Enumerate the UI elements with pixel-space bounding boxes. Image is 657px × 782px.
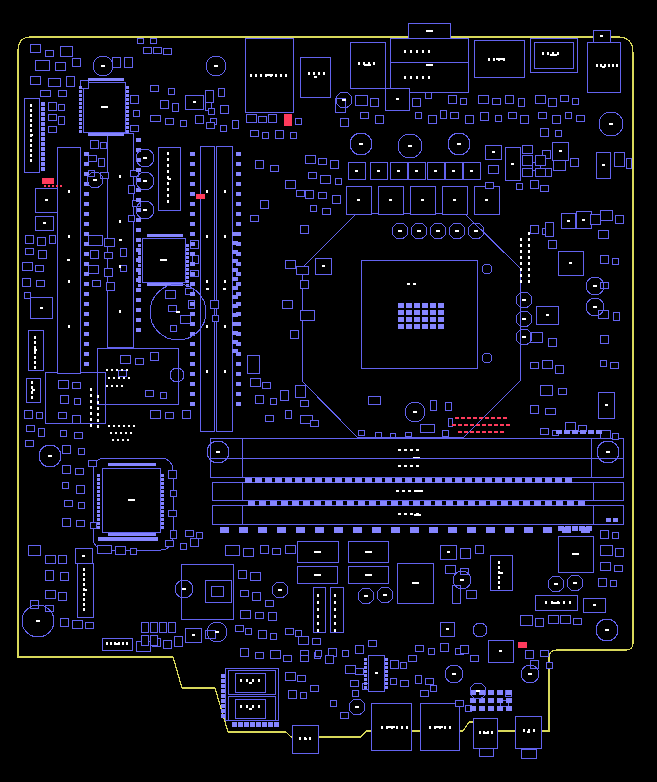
component[interactable] [165, 412, 173, 418]
component[interactable] [72, 620, 82, 628]
component[interactable] [285, 410, 291, 418]
component[interactable] [370, 98, 378, 106]
component[interactable] [168, 470, 176, 478]
component[interactable] [420, 424, 434, 432]
component[interactable] [520, 115, 528, 123]
component[interactable] [168, 88, 174, 94]
component[interactable] [255, 612, 263, 618]
component[interactable] [40, 90, 50, 96]
component[interactable] [522, 155, 532, 165]
component[interactable] [576, 115, 584, 121]
component[interactable] [25, 248, 33, 254]
component[interactable] [425, 678, 433, 684]
component[interactable] [415, 645, 423, 651]
component[interactable] [243, 548, 253, 556]
pcb-viewer-canvas[interactable] [0, 0, 657, 782]
component[interactable] [358, 430, 364, 435]
component[interactable] [475, 545, 483, 553]
component[interactable] [285, 628, 293, 634]
component[interactable] [540, 128, 548, 136]
component[interactable] [598, 230, 608, 238]
component[interactable] [130, 95, 138, 103]
component[interactable] [246, 114, 256, 122]
component[interactable] [74, 432, 82, 438]
m2-connector-2[interactable] [330, 587, 343, 632]
component[interactable] [546, 662, 552, 668]
highlighted-component[interactable] [518, 642, 527, 648]
component[interactable] [305, 190, 313, 198]
component[interactable] [505, 95, 513, 103]
component[interactable] [258, 630, 266, 638]
component[interactable] [368, 396, 380, 404]
component[interactable] [318, 158, 326, 164]
highlighted-component[interactable] [42, 178, 54, 184]
component[interactable] [448, 95, 456, 103]
component[interactable] [545, 408, 555, 414]
component[interactable] [548, 240, 556, 248]
component[interactable] [300, 310, 314, 320]
component[interactable] [600, 210, 612, 220]
component[interactable] [470, 655, 478, 661]
component[interactable] [565, 112, 571, 118]
component[interactable] [48, 114, 56, 120]
component[interactable] [62, 518, 70, 526]
component[interactable] [530, 362, 538, 368]
component[interactable] [492, 98, 500, 104]
component[interactable] [322, 208, 330, 214]
component[interactable] [516, 183, 522, 189]
component[interactable] [540, 185, 548, 191]
component[interactable] [250, 378, 260, 386]
component[interactable] [48, 126, 56, 132]
component[interactable] [375, 432, 381, 437]
component[interactable] [180, 120, 186, 126]
component[interactable] [445, 402, 451, 410]
component[interactable] [535, 155, 545, 165]
component[interactable] [58, 90, 66, 96]
component[interactable] [285, 180, 295, 188]
component[interactable] [88, 265, 98, 273]
component[interactable] [600, 530, 608, 538]
component[interactable] [104, 238, 114, 246]
component[interactable] [45, 50, 53, 56]
component[interactable] [572, 98, 578, 104]
component[interactable] [452, 585, 460, 603]
component[interactable] [180, 543, 186, 549]
component[interactable] [64, 500, 72, 506]
component[interactable] [466, 590, 476, 598]
component[interactable] [90, 140, 98, 148]
component[interactable] [295, 118, 301, 124]
component[interactable] [163, 48, 171, 54]
component[interactable] [295, 630, 301, 636]
component[interactable] [614, 152, 624, 166]
component[interactable] [615, 215, 623, 223]
component[interactable] [58, 592, 66, 600]
component[interactable] [300, 280, 308, 288]
component[interactable] [535, 618, 543, 626]
component[interactable] [520, 615, 532, 625]
component[interactable] [250, 130, 258, 136]
component[interactable] [460, 548, 470, 558]
component[interactable] [460, 645, 468, 653]
component[interactable] [235, 625, 243, 631]
component[interactable] [485, 182, 493, 188]
component[interactable] [540, 650, 548, 656]
component[interactable] [455, 700, 463, 706]
component[interactable] [85, 622, 93, 628]
component[interactable] [600, 545, 612, 555]
component[interactable] [480, 112, 488, 120]
component[interactable] [58, 116, 64, 124]
component[interactable] [48, 102, 56, 110]
component[interactable] [232, 120, 238, 128]
component[interactable] [45, 555, 55, 563]
component[interactable] [552, 115, 560, 123]
component[interactable] [310, 685, 318, 691]
component[interactable] [58, 104, 64, 110]
component[interactable] [35, 265, 43, 271]
component[interactable] [238, 570, 246, 578]
component[interactable] [355, 645, 363, 653]
component[interactable] [282, 300, 292, 308]
component[interactable] [38, 428, 44, 436]
component[interactable] [540, 428, 548, 434]
audio-jack-1-tab[interactable] [479, 748, 493, 756]
component[interactable] [24, 410, 32, 418]
component[interactable] [610, 580, 616, 586]
component[interactable] [270, 398, 276, 404]
component[interactable] [540, 385, 552, 395]
component[interactable] [598, 578, 606, 586]
component[interactable] [295, 385, 305, 397]
component[interactable] [342, 650, 348, 656]
component[interactable] [612, 433, 618, 439]
component[interactable] [478, 95, 488, 103]
component[interactable] [240, 648, 248, 656]
component[interactable] [600, 335, 608, 343]
component[interactable] [170, 490, 176, 496]
component[interactable] [542, 360, 552, 368]
component[interactable] [553, 160, 565, 170]
board-layout-svg[interactable] [0, 0, 657, 782]
component[interactable] [168, 305, 176, 311]
component[interactable] [508, 112, 516, 118]
component[interactable] [104, 268, 112, 276]
component[interactable] [530, 180, 538, 188]
component[interactable] [345, 665, 355, 673]
component[interactable] [590, 214, 600, 224]
component[interactable] [115, 546, 125, 554]
component[interactable] [262, 382, 270, 388]
component[interactable] [290, 330, 298, 338]
component[interactable] [262, 132, 268, 138]
component[interactable] [58, 555, 66, 563]
component[interactable] [60, 395, 68, 403]
component[interactable] [270, 650, 280, 658]
component[interactable] [196, 532, 202, 538]
component[interactable] [225, 545, 239, 555]
component[interactable] [626, 158, 631, 168]
component[interactable] [150, 115, 160, 121]
component[interactable] [300, 655, 308, 661]
component[interactable] [90, 250, 98, 258]
component[interactable] [195, 115, 203, 123]
component[interactable] [24, 292, 30, 298]
component[interactable] [88, 155, 96, 161]
component[interactable] [78, 502, 84, 508]
component[interactable] [150, 410, 160, 418]
component[interactable] [305, 155, 315, 163]
component[interactable] [104, 252, 112, 258]
component[interactable] [285, 672, 295, 680]
component[interactable] [133, 110, 139, 116]
component[interactable] [615, 548, 623, 556]
component[interactable] [270, 165, 278, 171]
component[interactable] [288, 690, 296, 698]
component[interactable] [88, 460, 96, 466]
component[interactable] [150, 85, 158, 91]
component[interactable] [400, 680, 408, 686]
component[interactable] [25, 235, 33, 243]
component[interactable] [428, 648, 434, 654]
component[interactable] [48, 78, 60, 86]
component[interactable] [159, 622, 166, 632]
component[interactable] [141, 622, 148, 632]
component[interactable] [375, 115, 383, 123]
component[interactable] [150, 38, 156, 43]
component[interactable] [535, 168, 545, 176]
component[interactable] [137, 38, 143, 43]
component[interactable] [141, 635, 148, 645]
component[interactable] [268, 612, 276, 620]
component[interactable] [35, 60, 49, 70]
component[interactable] [548, 615, 558, 623]
component[interactable] [165, 290, 175, 298]
component[interactable] [72, 382, 80, 388]
component[interactable] [98, 158, 104, 166]
component[interactable] [545, 168, 551, 176]
component[interactable] [340, 712, 348, 718]
component[interactable] [296, 266, 308, 274]
component[interactable] [45, 605, 53, 611]
component[interactable] [25, 440, 33, 446]
component[interactable] [425, 92, 431, 98]
component[interactable] [530, 660, 538, 668]
component[interactable] [255, 395, 263, 403]
component[interactable] [310, 205, 316, 211]
component[interactable] [60, 46, 72, 56]
component[interactable] [298, 636, 308, 644]
component[interactable] [445, 565, 455, 573]
component[interactable] [143, 47, 151, 53]
component[interactable] [45, 590, 55, 598]
component[interactable] [335, 178, 341, 184]
component[interactable] [220, 105, 228, 113]
component[interactable] [168, 510, 176, 516]
component[interactable] [390, 433, 395, 437]
component[interactable] [522, 168, 532, 176]
component[interactable] [170, 325, 176, 331]
component[interactable] [300, 225, 308, 233]
component[interactable] [58, 380, 68, 388]
component[interactable] [28, 545, 40, 555]
component[interactable] [332, 195, 340, 203]
component[interactable] [283, 655, 291, 661]
component[interactable] [66, 76, 74, 86]
component[interactable] [368, 640, 376, 646]
component[interactable] [212, 315, 218, 321]
component[interactable] [390, 678, 396, 684]
component[interactable] [440, 643, 448, 651]
component[interactable] [350, 680, 358, 686]
component[interactable] [36, 280, 44, 286]
component[interactable] [252, 592, 260, 600]
component[interactable] [72, 58, 80, 66]
component[interactable] [37, 237, 45, 245]
component[interactable] [160, 392, 166, 398]
component[interactable] [545, 222, 553, 236]
highlighted-component[interactable] [196, 194, 205, 199]
component[interactable] [614, 565, 622, 571]
component[interactable] [92, 280, 100, 286]
component[interactable] [208, 108, 214, 114]
component[interactable] [297, 675, 305, 681]
component[interactable] [408, 655, 416, 661]
component[interactable] [320, 175, 330, 183]
component[interactable] [525, 650, 533, 658]
component[interactable] [255, 160, 263, 168]
component[interactable] [390, 660, 398, 668]
component[interactable] [450, 112, 458, 118]
component[interactable] [185, 530, 193, 536]
component[interactable] [518, 98, 524, 106]
component[interactable] [255, 652, 263, 658]
component[interactable] [405, 432, 411, 436]
component[interactable] [360, 112, 368, 118]
component[interactable] [265, 415, 273, 421]
component[interactable] [247, 355, 259, 373]
component[interactable] [560, 615, 570, 623]
component[interactable] [495, 115, 501, 121]
component[interactable] [160, 100, 168, 108]
component[interactable] [150, 622, 157, 632]
component[interactable] [555, 130, 561, 136]
component[interactable] [440, 110, 446, 118]
component[interactable] [58, 412, 66, 418]
component[interactable] [548, 338, 556, 346]
component[interactable] [325, 655, 333, 663]
component[interactable] [170, 530, 176, 538]
component[interactable] [312, 638, 320, 644]
component[interactable] [610, 362, 618, 368]
component[interactable] [88, 235, 102, 245]
component[interactable] [30, 76, 40, 84]
component[interactable] [240, 610, 250, 618]
component[interactable] [290, 132, 296, 138]
component[interactable] [60, 430, 66, 436]
component[interactable] [488, 165, 498, 173]
component[interactable] [260, 200, 268, 208]
component[interactable] [130, 548, 136, 554]
component[interactable] [192, 255, 198, 263]
component[interactable] [530, 225, 538, 233]
component[interactable] [308, 172, 316, 178]
component[interactable] [205, 90, 213, 102]
component[interactable] [124, 57, 132, 67]
component[interactable] [145, 390, 153, 396]
component[interactable] [448, 418, 452, 426]
component[interactable] [210, 300, 218, 308]
component[interactable] [30, 44, 40, 52]
component[interactable] [22, 262, 32, 270]
component[interactable] [268, 114, 276, 122]
component[interactable] [163, 640, 171, 648]
component[interactable] [38, 250, 46, 258]
component[interactable] [600, 360, 606, 366]
component[interactable] [106, 282, 114, 290]
component[interactable] [168, 622, 175, 632]
component[interactable] [250, 572, 260, 580]
component[interactable] [285, 260, 295, 268]
component[interactable] [555, 365, 563, 373]
component[interactable] [538, 112, 546, 118]
component[interactable] [74, 398, 80, 404]
component[interactable] [150, 635, 157, 645]
component[interactable] [530, 405, 538, 413]
component[interactable] [340, 118, 348, 126]
component[interactable] [573, 618, 581, 624]
component[interactable] [45, 570, 53, 580]
component[interactable] [280, 390, 288, 400]
component[interactable] [76, 485, 84, 493]
component[interactable] [613, 312, 619, 320]
component[interactable] [62, 445, 70, 453]
component[interactable] [400, 662, 406, 668]
component[interactable] [565, 422, 575, 430]
component[interactable] [300, 400, 308, 406]
component[interactable] [355, 668, 363, 674]
component[interactable] [76, 520, 84, 526]
component[interactable] [272, 548, 280, 554]
component[interactable] [260, 545, 268, 553]
component[interactable] [300, 692, 306, 698]
component[interactable] [548, 98, 556, 106]
component[interactable] [330, 700, 336, 706]
highlighted-component[interactable] [284, 114, 292, 126]
component[interactable] [245, 628, 251, 634]
component[interactable] [412, 98, 420, 106]
component[interactable] [78, 448, 84, 454]
component[interactable] [318, 192, 326, 198]
component[interactable] [428, 115, 436, 123]
component[interactable] [190, 538, 198, 546]
component[interactable] [22, 278, 30, 286]
component[interactable] [460, 98, 466, 104]
component[interactable] [180, 315, 190, 323]
component[interactable] [310, 420, 318, 426]
component[interactable] [415, 675, 421, 683]
component[interactable] [218, 88, 224, 96]
component[interactable] [522, 145, 532, 153]
component[interactable] [352, 690, 358, 696]
component[interactable] [26, 425, 34, 431]
component[interactable] [165, 118, 173, 124]
audio-jack-2-tab[interactable] [521, 749, 536, 758]
component[interactable] [220, 125, 226, 131]
component[interactable] [97, 545, 111, 553]
component[interactable] [430, 685, 436, 691]
